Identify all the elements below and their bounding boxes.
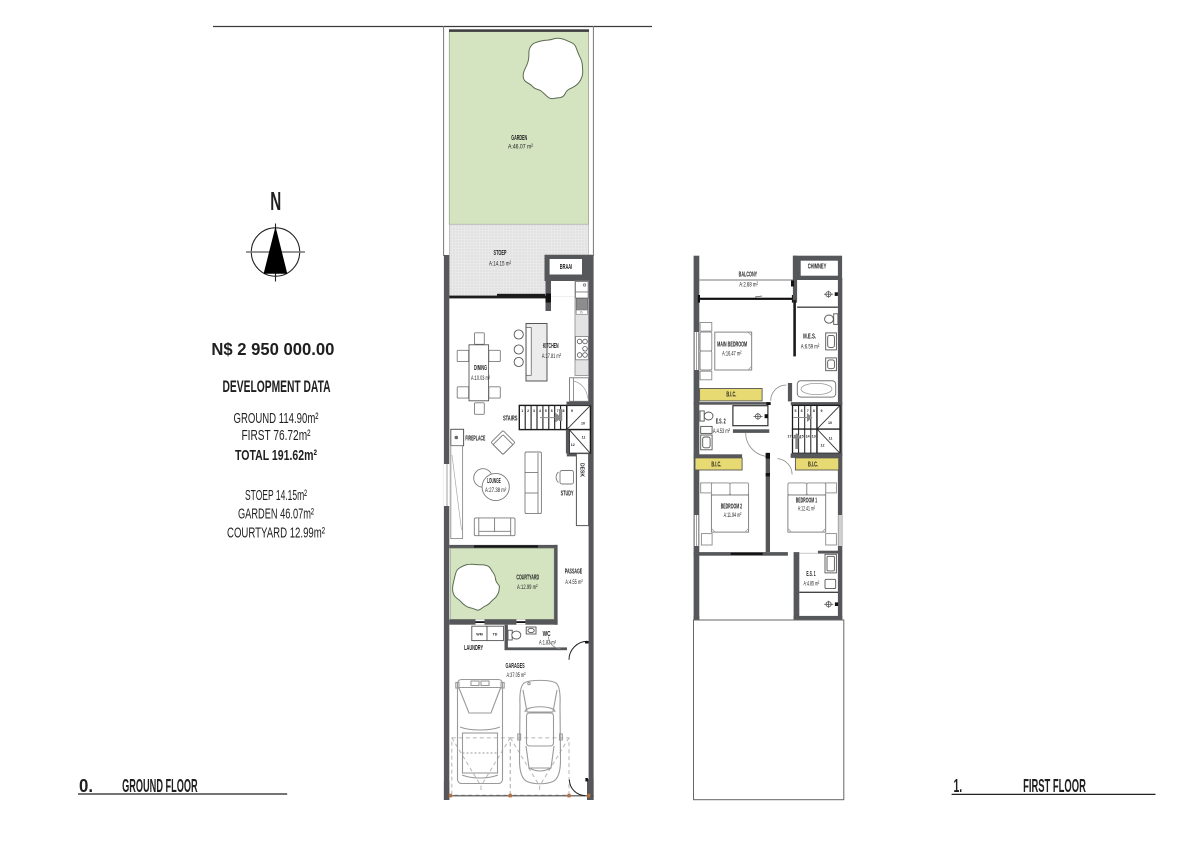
svg-text:13: 13: [812, 434, 816, 438]
svg-text:BEDROOM 1: BEDROOM 1: [796, 495, 817, 504]
svg-text:STAIRS: STAIRS: [503, 414, 518, 423]
svg-text:FIREPLACE: FIREPLACE: [465, 434, 485, 443]
svg-text:14: 14: [806, 434, 810, 438]
svg-text:A:37.05 m²: A:37.05 m²: [507, 672, 526, 679]
svg-text:A:6.59 m²: A:6.59 m²: [801, 344, 820, 351]
svg-text:N: N: [270, 186, 281, 216]
svg-text:WM: WM: [476, 633, 482, 637]
svg-text:11: 11: [829, 437, 833, 441]
svg-text:PASSAGE: PASSAGE: [565, 567, 582, 576]
svg-text:12: 12: [821, 444, 825, 448]
svg-text:7: 7: [807, 409, 809, 413]
svg-text:DINING: DINING: [474, 365, 487, 372]
svg-text:COURTYARD: COURTYARD: [516, 573, 539, 582]
svg-text:STOEP 14.15m²: STOEP 14.15m²: [245, 487, 307, 504]
svg-text:BRAAI: BRAAI: [560, 264, 573, 271]
svg-text:DEVELOPMENT DATA: DEVELOPMENT DATA: [223, 377, 331, 396]
svg-text:GARDEN: GARDEN: [511, 133, 527, 142]
svg-text:10: 10: [581, 422, 585, 426]
svg-text:A:2.68 m²: A:2.68 m²: [739, 282, 758, 289]
svg-text:A:4.55 m²: A:4.55 m²: [565, 579, 583, 586]
svg-text:N$ 2 950 000.00: N$ 2 950 000.00: [211, 339, 334, 359]
svg-text:B.I.C.: B.I.C.: [808, 459, 818, 468]
svg-text:B.I.C.: B.I.C.: [711, 459, 721, 468]
svg-text:KITCHEN: KITCHEN: [543, 341, 559, 350]
svg-text:A:11.94 m²: A:11.94 m²: [724, 512, 742, 519]
svg-text:FIRST 76.72m²: FIRST 76.72m²: [242, 427, 311, 444]
svg-text:GROUND 114.90m²: GROUND 114.90m²: [234, 410, 319, 427]
svg-text:A:16.47 m²: A:16.47 m²: [722, 350, 742, 357]
svg-text:h: h: [581, 311, 583, 315]
svg-text:A:27.38 m²: A:27.38 m²: [485, 487, 507, 494]
svg-text:0.: 0.: [79, 775, 93, 796]
svg-text:A:12.41 m²: A:12.41 m²: [798, 505, 815, 512]
svg-text:4: 4: [539, 409, 541, 413]
svg-text:8: 8: [563, 409, 565, 413]
svg-text:COURTYARD 12.99m²: COURTYARD 12.99m²: [227, 525, 325, 542]
svg-text:STOEP: STOEP: [494, 248, 507, 257]
svg-text:STUDY: STUDY: [561, 489, 574, 498]
svg-text:A:14.15 m²: A:14.15 m²: [489, 261, 511, 268]
svg-text:CHIMNEY: CHIMNEY: [808, 262, 827, 271]
svg-text:A:4.85 m²: A:4.85 m²: [804, 580, 820, 587]
svg-text:LOUNGE: LOUNGE: [487, 478, 501, 485]
svg-text:TD: TD: [493, 633, 498, 637]
svg-text:17: 17: [788, 434, 792, 438]
svg-text:2: 2: [527, 409, 529, 413]
svg-text:A:17.81 m²: A:17.81 m²: [542, 353, 561, 360]
svg-text:A:4.53 m²: A:4.53 m²: [713, 428, 731, 435]
svg-text:B.I.C.: B.I.C.: [726, 389, 736, 398]
svg-text:A:10.03 m²: A:10.03 m²: [471, 375, 490, 382]
svg-text:MAIN BEDROOM: MAIN BEDROOM: [717, 339, 747, 348]
svg-text:6: 6: [551, 409, 553, 413]
svg-text:9: 9: [571, 409, 573, 413]
svg-text:12: 12: [571, 443, 575, 447]
svg-text:GROUND FLOOR: GROUND FLOOR: [122, 775, 198, 796]
svg-text:A:12.99 m²: A:12.99 m²: [517, 584, 538, 591]
svg-text:5: 5: [545, 409, 547, 413]
svg-text:3: 3: [533, 409, 535, 413]
svg-text:5: 5: [795, 409, 797, 413]
svg-text:E.S. 1: E.S. 1: [806, 569, 815, 578]
svg-text:A:46.07 m²: A:46.07 m²: [508, 144, 534, 151]
svg-text:9: 9: [821, 409, 823, 413]
svg-text:11: 11: [582, 436, 586, 440]
svg-text:DESK: DESK: [579, 463, 585, 477]
svg-text:M.E.S.: M.E.S.: [803, 332, 816, 341]
svg-text:GARAGES: GARAGES: [506, 661, 525, 670]
svg-text:TOTAL 191.62m²: TOTAL 191.62m²: [235, 447, 317, 464]
svg-text:A:1.83 m²: A:1.83 m²: [539, 640, 556, 647]
svg-text:7: 7: [557, 409, 559, 413]
svg-text:BEDROOM 2: BEDROOM 2: [721, 501, 742, 510]
svg-text:LAUNDRY: LAUNDRY: [464, 643, 483, 652]
svg-text:E.S. 2: E.S. 2: [716, 417, 726, 426]
svg-text:1: 1: [521, 409, 523, 413]
svg-text:8: 8: [813, 409, 815, 413]
svg-text:1.: 1.: [954, 775, 963, 796]
svg-text:WC: WC: [543, 631, 551, 638]
svg-text:FIRST FLOOR: FIRST FLOOR: [1023, 775, 1086, 796]
svg-text:BALCONY: BALCONY: [739, 270, 758, 279]
svg-text:10: 10: [828, 421, 832, 425]
svg-text:GARDEN 46.07m²: GARDEN 46.07m²: [238, 506, 314, 523]
svg-text:6: 6: [801, 409, 803, 413]
